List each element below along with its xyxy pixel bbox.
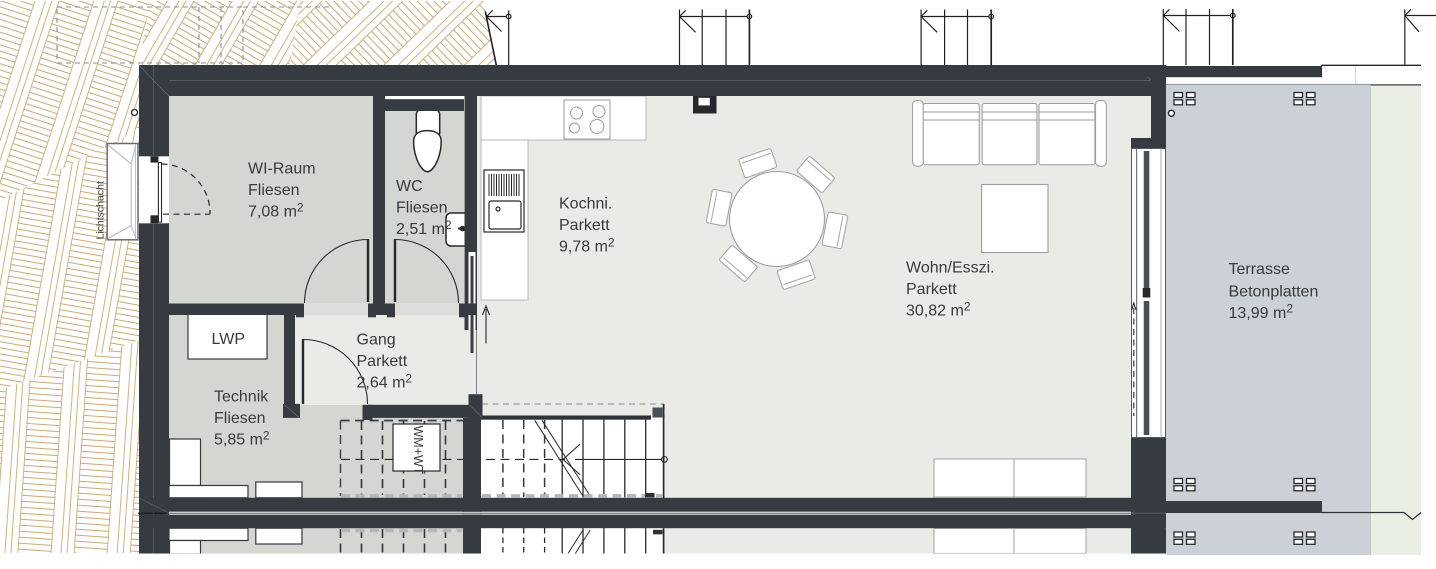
svg-text:13,99 m2: 13,99 m2 bbox=[1229, 302, 1294, 322]
svg-text:Parkett: Parkett bbox=[559, 217, 610, 234]
svg-text:7,08 m2: 7,08 m2 bbox=[248, 200, 304, 220]
svg-text:2,64 m2: 2,64 m2 bbox=[357, 371, 413, 391]
svg-text:Parkett: Parkett bbox=[906, 281, 957, 298]
svg-text:5,85 m2: 5,85 m2 bbox=[214, 428, 270, 448]
svg-text:Kochni.: Kochni. bbox=[559, 196, 612, 213]
svg-text:9,78 m2: 9,78 m2 bbox=[559, 235, 615, 255]
svg-text:Lichtschacht: Lichtschacht bbox=[95, 181, 107, 239]
svg-text:2,51 m2: 2,51 m2 bbox=[396, 218, 452, 238]
svg-text:Terrasse: Terrasse bbox=[1229, 261, 1290, 278]
svg-text:Parkett: Parkett bbox=[357, 353, 408, 370]
svg-text:Fliesen: Fliesen bbox=[396, 200, 448, 217]
svg-text:WI-Raum: WI-Raum bbox=[248, 161, 316, 178]
svg-text:Fliesen: Fliesen bbox=[248, 182, 300, 199]
svg-text:WC: WC bbox=[396, 178, 423, 195]
svg-text:Wohn/Esszi.: Wohn/Esszi. bbox=[906, 260, 995, 277]
svg-text:Technik: Technik bbox=[214, 389, 269, 406]
svg-text:Fliesen: Fliesen bbox=[214, 410, 266, 427]
svg-text:30,82 m2: 30,82 m2 bbox=[906, 299, 971, 319]
svg-text:WM+WT: WM+WT bbox=[411, 426, 425, 475]
svg-text:Gang: Gang bbox=[357, 332, 396, 349]
svg-text:Betonplatten: Betonplatten bbox=[1229, 283, 1319, 300]
svg-text:LWP: LWP bbox=[212, 331, 245, 348]
